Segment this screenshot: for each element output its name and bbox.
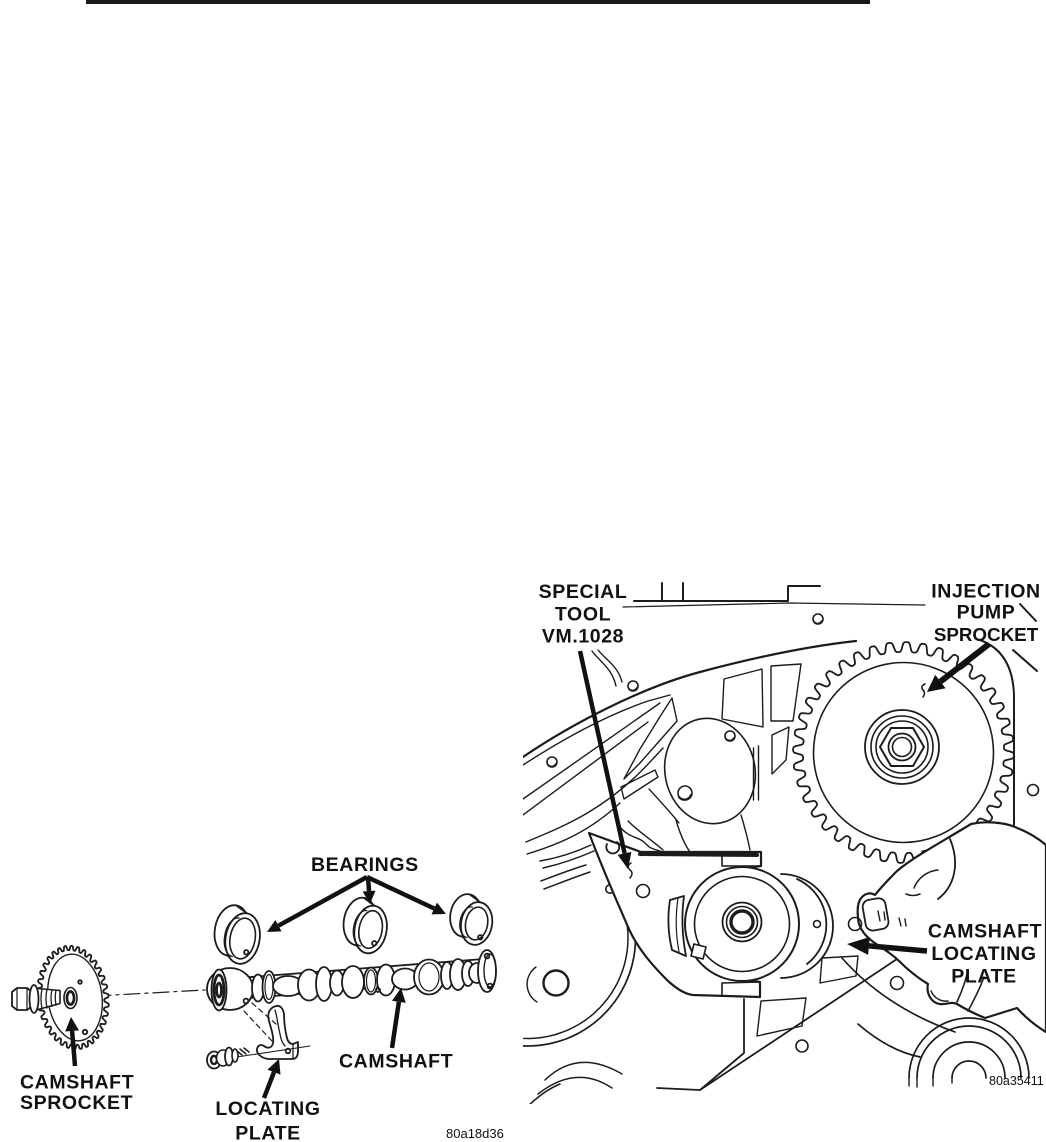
svg-text:PLATE: PLATE: [951, 966, 1016, 988]
svg-text:LOCATING: LOCATING: [215, 1098, 320, 1120]
svg-text:VM.1028: VM.1028: [542, 626, 624, 648]
svg-text:80a35411: 80a35411: [989, 1074, 1044, 1088]
svg-text:80a18d36: 80a18d36: [446, 1126, 504, 1141]
svg-text:SPECIAL: SPECIAL: [539, 581, 628, 603]
svg-text:LOCATING: LOCATING: [931, 943, 1036, 965]
svg-text:CAMSHAFT: CAMSHAFT: [928, 921, 1042, 943]
svg-text:CAMSHAFT: CAMSHAFT: [339, 1051, 453, 1073]
svg-text:SPROCKET: SPROCKET: [934, 624, 1039, 645]
svg-text:PUMP: PUMP: [957, 602, 1016, 624]
svg-text:SPROCKET: SPROCKET: [20, 1092, 133, 1114]
svg-text:PLATE: PLATE: [235, 1123, 300, 1142]
svg-text:CAMSHAFT: CAMSHAFT: [20, 1072, 134, 1094]
svg-text:BEARINGS: BEARINGS: [311, 854, 419, 876]
svg-text:INJECTION: INJECTION: [931, 581, 1040, 603]
svg-text:TOOL: TOOL: [555, 604, 611, 626]
